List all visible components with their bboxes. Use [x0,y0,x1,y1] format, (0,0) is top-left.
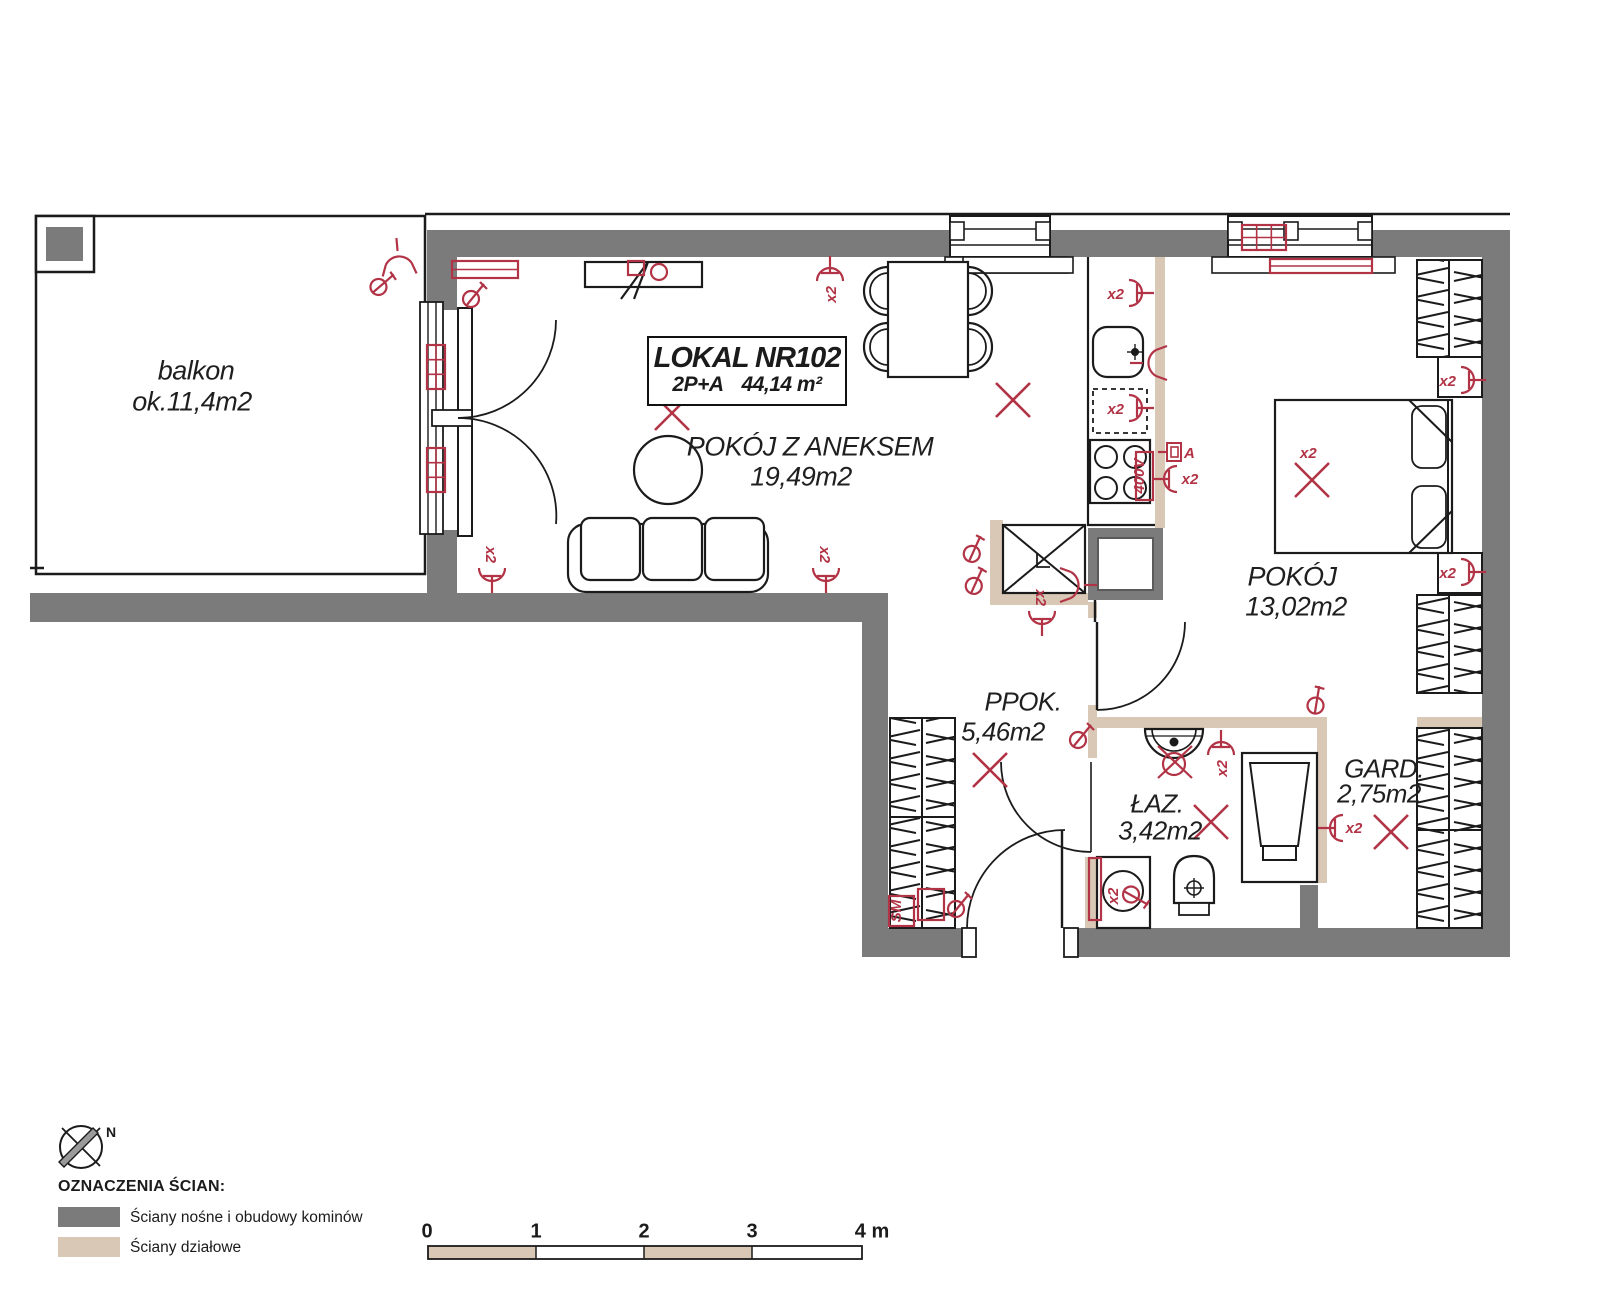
north-label: N [106,1124,116,1140]
gard-area: 2,75m2 [1337,779,1421,810]
floor-plan-drawing: x2x2x2x2400VAx2x2x2x2x2x2x2x2x2SMx2 [0,0,1600,1289]
legend-swatch-partition [58,1237,120,1257]
svg-text:A: A [1183,445,1195,462]
svg-text:x2: x2 [1299,445,1317,462]
symbol-key-icon [1300,683,1333,717]
bathroom-area: 3,42m2 [1118,816,1202,847]
scale-bar [428,1246,862,1259]
dining-set [864,262,992,377]
symbol-label-icon: x2 [1105,887,1122,905]
wardrobe-bedroom-bottom [1417,595,1482,693]
sofa [568,518,768,592]
living-room-label: POKÓJ Z ANEKSEM [687,432,934,463]
unit-area: 44,14 m² [742,373,822,397]
legend-item-load-bearing: Ściany nośne i obudowy kominów [130,1209,363,1227]
living-room-area: 19,49m2 [750,462,852,493]
symbol-xmark-icon [996,383,1030,417]
scale-tick-2: 2 [638,1221,649,1244]
legend-heading: OZNACZENIA ŚCIAN: [58,1178,225,1196]
symbol-outlet-icon: x2 [1106,280,1154,306]
bedroom-area: 13,02m2 [1245,592,1347,623]
symbol-outlet-icon: x2 [1208,730,1234,778]
symbol-radiator-icon [452,261,518,278]
symbol-outlet-icon: x2 [479,545,505,593]
bedroom-label: POKÓJ [1247,562,1336,593]
unit-title-box: LOKAL NR102 2P+A 44,14 m² [647,336,847,406]
symbol-key-icon [960,533,990,563]
symbol-key-icon [463,282,487,307]
svg-text:x2: x2 [1105,887,1122,905]
svg-text:x2: x2 [1214,759,1231,777]
symbol-label-icon: x2 [1181,471,1199,488]
toilet [1174,856,1214,915]
floor-plan-canvas: x2x2x2x2400VAx2x2x2x2x2x2x2x2x2SMx2 balk… [0,0,1600,1289]
symbol-xmark-icon [1374,815,1408,849]
symbol-outlet-icon: x2 [813,545,839,593]
unit-type: 2P+A [672,373,723,397]
symbol-label-icon: SM [888,899,905,922]
hall-label: PPOK. [985,687,1062,718]
unit-number: LOKAL NR102 [654,344,841,373]
legend-item-partition: Ściany działowe [130,1239,241,1257]
svg-text:x2: x2 [1438,565,1456,582]
shower [1242,753,1317,882]
svg-text:SM: SM [888,899,905,922]
legend-swatch-load-bearing [58,1207,120,1227]
svg-text:x2: x2 [1345,820,1363,837]
ventilation-shaft [1003,525,1085,593]
entrance-door-swing [967,830,1065,928]
svg-text:x2: x2 [816,545,833,563]
svg-text:400V: 400V [1131,456,1148,494]
compass-icon [59,1126,102,1168]
bedroom-door-swing [1097,622,1185,710]
symbol-outlet-icon: x2 [817,256,843,304]
balcony-door [420,302,556,536]
dining-table [888,262,968,377]
svg-text:x2: x2 [1438,373,1456,390]
bed [1275,400,1452,553]
svg-text:x2: x2 [482,545,499,563]
symbol-key-icon [962,565,992,595]
symbol-label-icon: x2 [1345,820,1363,837]
bedroom-window [1212,216,1395,273]
scale-tick-3: 3 [746,1221,757,1244]
scale-tick-1: 1 [530,1221,541,1244]
svg-text:x2: x2 [1106,286,1124,303]
wardrobe-bedroom-top [1417,260,1482,357]
bathroom-door-swing [1001,762,1091,852]
scale-tick-0: 0 [421,1221,432,1244]
doors [962,600,1185,957]
balcony-label: balkon [158,356,235,387]
svg-text:x2: x2 [1181,471,1199,488]
svg-text:x2: x2 [1106,401,1124,418]
chimney-shaft [1098,538,1153,590]
scale-tick-4: 4 m [855,1221,889,1244]
svg-text:x2: x2 [1032,588,1049,606]
balcony-area: ok.11,4m2 [132,387,252,418]
wardrobe-gard [1417,728,1482,928]
hall-area: 5,46m2 [961,717,1045,748]
symbol-label-icon: 400V [1131,456,1148,494]
svg-text:x2: x2 [823,285,840,303]
